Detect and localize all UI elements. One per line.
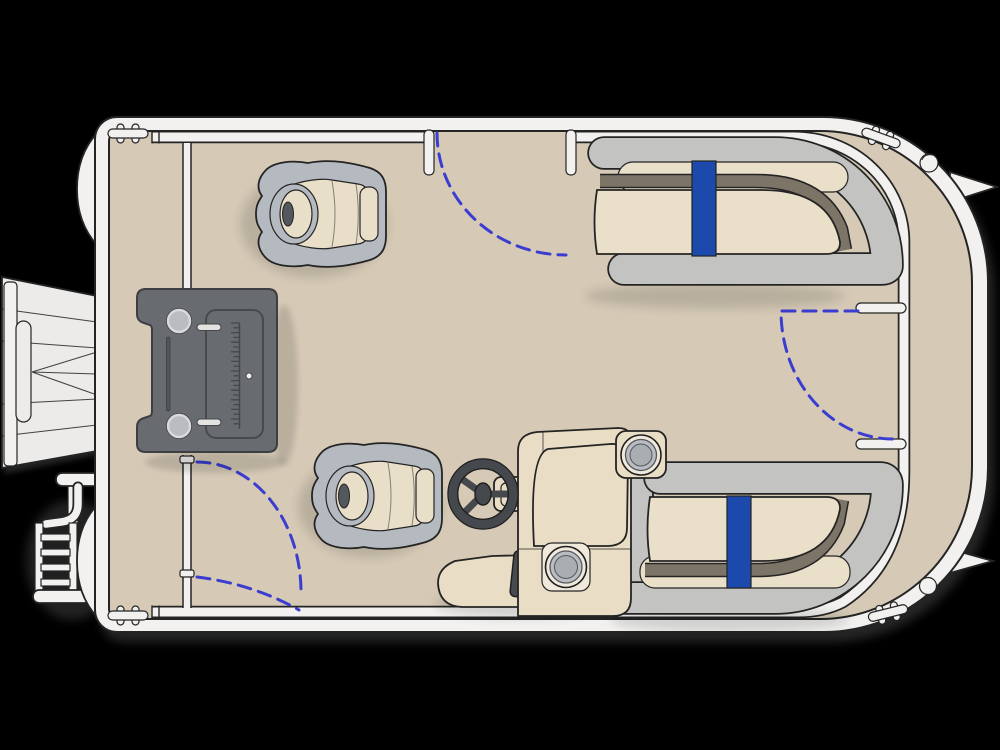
side-gate-hinge — [180, 570, 194, 577]
seat-cushion — [595, 190, 841, 254]
aft-gate-post-bottom — [856, 439, 906, 449]
cup-holder — [168, 415, 190, 437]
ladder-rung — [41, 564, 70, 571]
deck-light-bottom — [920, 578, 937, 595]
ramp-handle — [16, 321, 31, 422]
cup-holder — [630, 444, 652, 466]
aft-gate-post-top — [856, 303, 906, 313]
bow-gate-post-left — [424, 130, 434, 175]
table-station — [137, 289, 298, 473]
ramp-side-rail — [4, 282, 17, 466]
table-latch — [197, 324, 221, 331]
table-slot — [167, 337, 171, 411]
table-shadow2 — [145, 451, 285, 473]
seat-accent-stripe — [727, 496, 751, 588]
captain-chair-aft — [312, 443, 442, 549]
cup-holder — [168, 310, 190, 332]
floorplan-canvas — [0, 0, 1000, 750]
ladder-rung — [41, 579, 70, 586]
ladder-rung — [41, 549, 70, 556]
cup-holder — [555, 556, 578, 579]
pontoon-floorplan — [0, 0, 1000, 750]
captain-chair-forward — [256, 161, 386, 267]
table-dot — [246, 373, 252, 379]
wheel-hub — [475, 483, 491, 505]
lounge-seat-top — [585, 153, 887, 309]
table-latch — [197, 419, 221, 426]
seat-accent-stripe — [692, 161, 716, 256]
deck-light-top — [920, 154, 938, 172]
bow-gate-post-right — [566, 130, 576, 175]
seat-shadow — [585, 283, 845, 309]
console-windshield — [533, 444, 628, 546]
ladder-rung — [41, 534, 70, 541]
bow-boarding-ramp — [2, 277, 97, 474]
